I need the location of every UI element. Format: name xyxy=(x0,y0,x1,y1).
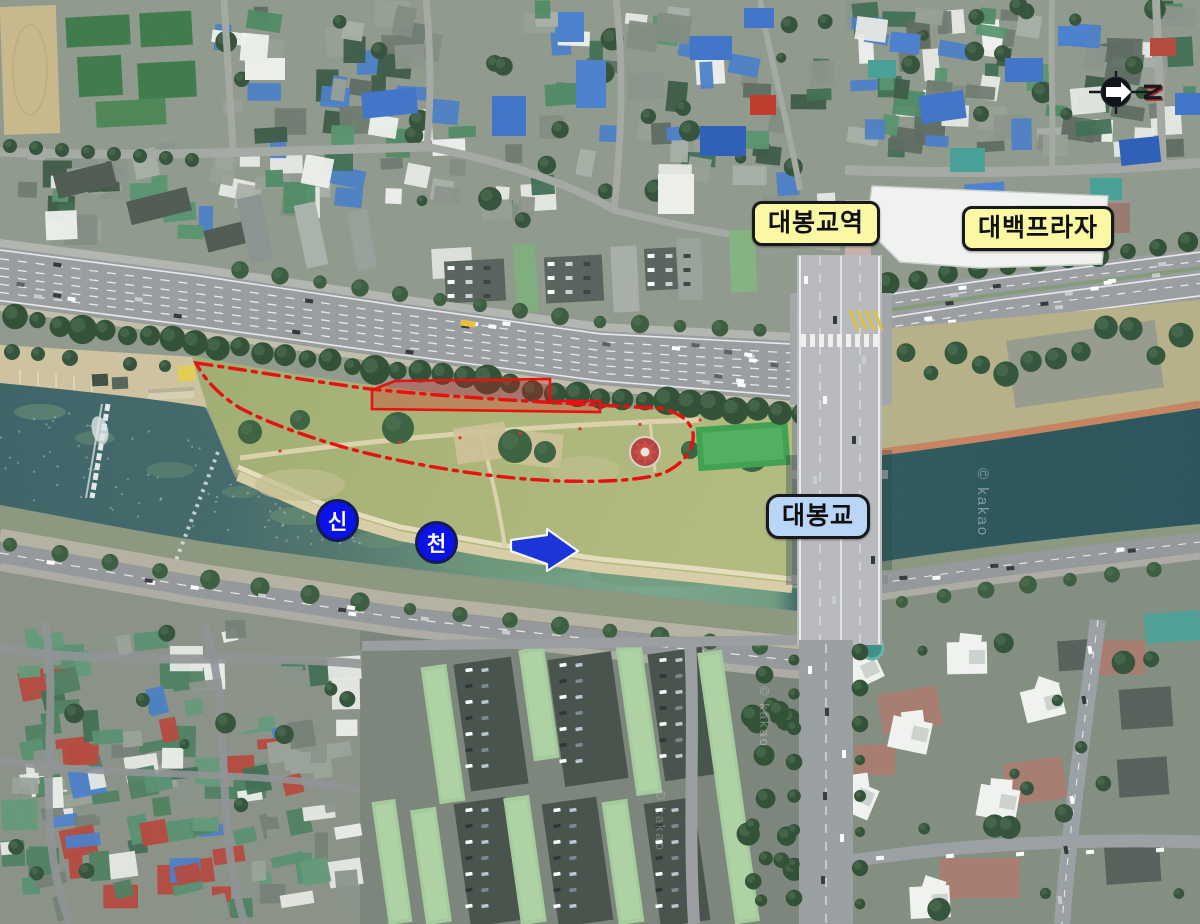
kakao-watermark: © kakao xyxy=(974,468,991,537)
river-name-badge-2: 천 xyxy=(415,521,458,564)
station-label: 대봉교역 xyxy=(752,201,880,246)
bridge-label: 대봉교 xyxy=(766,494,870,539)
north-letter: N xyxy=(1138,83,1166,101)
kakao-watermark: © kakao xyxy=(757,686,772,748)
river-name-badge-1: 신 xyxy=(316,499,359,542)
satellite-map: © kakao © kakao © kakao N N 대봉교역 대백프라자 대… xyxy=(0,0,1200,924)
kakao-watermark: © kakao xyxy=(653,790,668,852)
photo-grain xyxy=(0,0,1200,924)
plaza-label: 대백프라자 xyxy=(962,206,1114,251)
aerial-basemap: © kakao © kakao © kakao N N xyxy=(0,0,1200,924)
